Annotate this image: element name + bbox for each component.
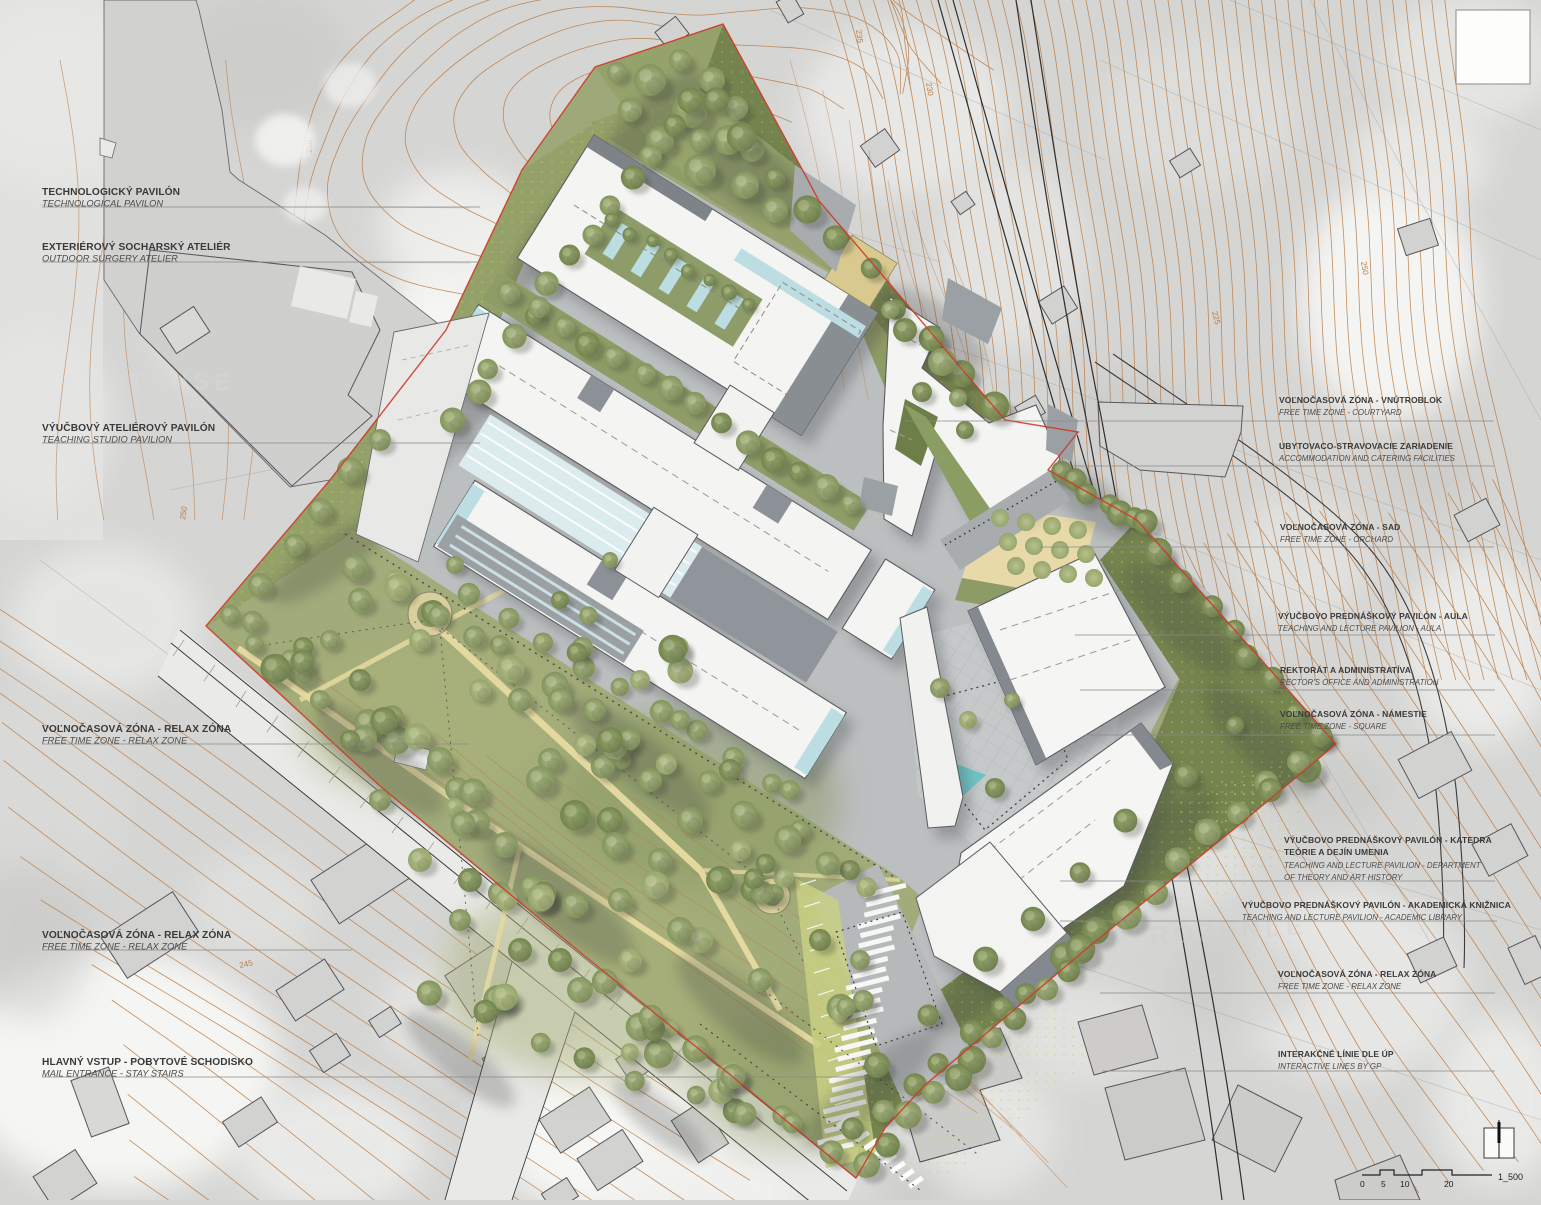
svg-text:EXTERIÉROVÝ SOCHARSKÝ ATELIÉR: EXTERIÉROVÝ SOCHARSKÝ ATELIÉR	[42, 240, 231, 253]
svg-text:VOĽNOČASOVÁ ZÓNA - RELAX ZÓNA: VOĽNOČASOVÁ ZÓNA - RELAX ZÓNA	[1278, 968, 1436, 979]
svg-text:FREE TIME ZONE - RELAX ZONE: FREE TIME ZONE - RELAX ZONE	[42, 736, 188, 746]
svg-text:VOĽNOČASOVÁ ZÓNA - RELAX ZÓNA: VOĽNOČASOVÁ ZÓNA - RELAX ZÓNA	[42, 722, 232, 735]
svg-text:INTERACTIVE LINES BY GP: INTERACTIVE LINES BY GP	[1278, 1062, 1382, 1071]
svg-text:TEACHING STUDIO PAVILION: TEACHING STUDIO PAVILION	[42, 435, 172, 445]
svg-text:235: 235	[854, 29, 865, 44]
svg-text:MAIL ENTRANCE - STAY STAIRS: MAIL ENTRANCE - STAY STAIRS	[42, 1069, 185, 1079]
svg-text:OUTDOOR SURGERY ATELIER: OUTDOOR SURGERY ATELIER	[42, 254, 178, 264]
svg-text:OF THEORY AND ART HISTORY: OF THEORY AND ART HISTORY	[1284, 873, 1403, 882]
svg-text:VÝUČBOVO PREDNÁŠKOVÝ PAVILÓN -: VÝUČBOVO PREDNÁŠKOVÝ PAVILÓN - KATEDRA	[1284, 834, 1492, 845]
svg-text:RECTOR'S OFFICE AND ADMINISTRA: RECTOR'S OFFICE AND ADMINISTRATION	[1280, 678, 1439, 687]
svg-text:VOĽNOČASOVÁ ZÓNA - NÁMESTIE: VOĽNOČASOVÁ ZÓNA - NÁMESTIE	[1280, 708, 1427, 719]
svg-text:VÝUČBOVO PREDNÁŠKOVÝ PAVILÓN -: VÝUČBOVO PREDNÁŠKOVÝ PAVILÓN - AULA	[1278, 610, 1468, 621]
svg-text:TEÓRIE A DEJÍN UMENIA: TEÓRIE A DEJÍN UMENIA	[1284, 846, 1389, 857]
svg-text:FREE TIME ZONE - RELAX ZONE: FREE TIME ZONE - RELAX ZONE	[1278, 982, 1402, 991]
svg-text:10: 10	[1400, 1179, 1410, 1189]
svg-text:TENSE: TENSE	[130, 369, 235, 396]
svg-text:1_500: 1_500	[1498, 1172, 1523, 1182]
svg-text:REKTORÁT A ADMINISTRATÍVA: REKTORÁT A ADMINISTRATÍVA	[1280, 665, 1411, 675]
svg-text:FREE TIME ZONE - ORCHARD: FREE TIME ZONE - ORCHARD	[1280, 535, 1393, 544]
svg-text:TEACHING AND LECTURE PAVILION: TEACHING AND LECTURE PAVILION - DEPARTME…	[1284, 861, 1482, 870]
svg-text:FREE TIME ZONE - SQUARE: FREE TIME ZONE - SQUARE	[1280, 722, 1387, 731]
svg-text:VOĽNOČASOVÁ ZÓNA - RELAX ZÓNA: VOĽNOČASOVÁ ZÓNA - RELAX ZÓNA	[42, 928, 232, 941]
svg-text:INTERAKČNÉ LÍNIE DLE ÚP: INTERAKČNÉ LÍNIE DLE ÚP	[1278, 1048, 1394, 1059]
svg-text:0: 0	[1360, 1179, 1365, 1189]
svg-text:TECHNOLOGICAL PAVILON: TECHNOLOGICAL PAVILON	[42, 199, 163, 209]
svg-text:TEACHING AND LECTURE PAVILION: TEACHING AND LECTURE PAVILION - ACADEMIC…	[1242, 913, 1463, 922]
svg-text:VOĽNOČASOVÁ ZÓNA - SAD: VOĽNOČASOVÁ ZÓNA - SAD	[1280, 521, 1400, 532]
svg-text:HLAVNÝ VSTUP - POBYTOVÉ SCHODI: HLAVNÝ VSTUP - POBYTOVÉ SCHODISKO	[42, 1055, 253, 1068]
svg-text:FREE TIME ZONE - RELAX ZONE: FREE TIME ZONE - RELAX ZONE	[42, 942, 188, 952]
svg-text:20: 20	[1444, 1179, 1454, 1189]
svg-text:UBYTOVACO-STRAVOVACIE ZARIADEN: UBYTOVACO-STRAVOVACIE ZARIADENIE	[1279, 441, 1453, 451]
svg-text:TECHNOLOGICKÝ PAVILÓN: TECHNOLOGICKÝ PAVILÓN	[42, 185, 180, 198]
svg-text:5: 5	[1381, 1179, 1386, 1189]
svg-text:VOĽNOČASOVÁ ZÓNA - VNÚTROBLOK: VOĽNOČASOVÁ ZÓNA - VNÚTROBLOK	[1279, 394, 1443, 405]
svg-text:VÝUČBOVÝ ATELIÉROVÝ PAVILÓN: VÝUČBOVÝ ATELIÉROVÝ PAVILÓN	[42, 421, 215, 434]
svg-text:ACCOMMODATION AND CATERING FAC: ACCOMMODATION AND CATERING FACILITIES	[1278, 454, 1456, 463]
svg-text:TEACHING AND LECTURE PAVILION: TEACHING AND LECTURE PAVILION - AULA	[1278, 624, 1441, 633]
svg-text:FREE TIME ZONE - COURTYARD: FREE TIME ZONE - COURTYARD	[1279, 408, 1402, 417]
svg-text:VÝUČBOVO PREDNÁŠKOVÝ PAVILÓN -: VÝUČBOVO PREDNÁŠKOVÝ PAVILÓN - AKADEMICK…	[1242, 899, 1511, 910]
